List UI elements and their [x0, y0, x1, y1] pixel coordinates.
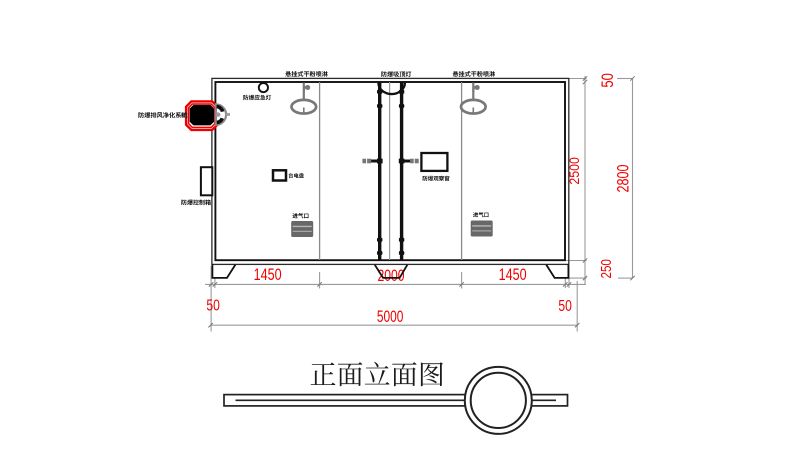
svg-text:250: 250 — [599, 259, 615, 279]
svg-text:50: 50 — [598, 73, 617, 88]
svg-text:5000: 5000 — [377, 308, 404, 326]
svg-text:1450: 1450 — [254, 266, 282, 284]
svg-text:1450: 1450 — [499, 266, 527, 284]
svg-text:50: 50 — [558, 298, 572, 315]
svg-text:50: 50 — [206, 298, 220, 315]
svg-text:2800: 2800 — [615, 165, 633, 193]
